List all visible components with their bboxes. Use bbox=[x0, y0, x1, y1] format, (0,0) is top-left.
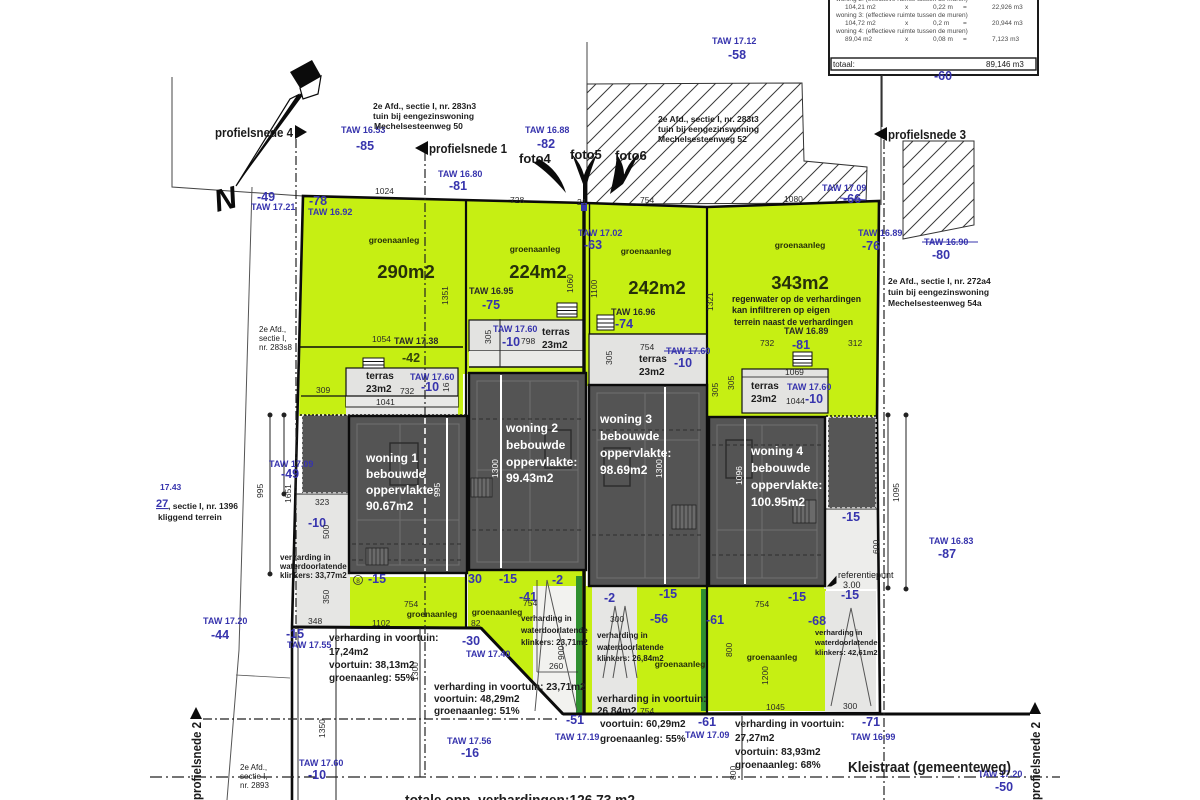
svg-text:-56: -56 bbox=[650, 612, 668, 626]
svg-text:tuin bij eengezinswoning: tuin bij eengezinswoning bbox=[658, 124, 759, 134]
svg-text:klinkers: 42,61m2: klinkers: 42,61m2 bbox=[815, 648, 878, 657]
svg-text:groenaanleg: groenaanleg bbox=[369, 235, 420, 245]
svg-text:Mechelsesteenweg 54a: Mechelsesteenweg 54a bbox=[888, 298, 982, 308]
svg-text:tuin bij eengezinswoning: tuin bij eengezinswoning bbox=[888, 287, 989, 297]
svg-text:-42: -42 bbox=[402, 351, 420, 365]
svg-text:-10: -10 bbox=[308, 768, 326, 782]
svg-text:profielsnede 2: profielsnede 2 bbox=[189, 722, 204, 800]
svg-text:-58: -58 bbox=[728, 48, 746, 62]
svg-text:20,944 m3: 20,944 m3 bbox=[992, 20, 1023, 27]
svg-text:TAW 16.96: TAW 16.96 bbox=[611, 307, 655, 317]
svg-text:732: 732 bbox=[760, 338, 774, 348]
svg-text:sectie I,: sectie I, bbox=[240, 772, 268, 781]
svg-text:800: 800 bbox=[728, 766, 738, 780]
svg-text:1350: 1350 bbox=[317, 719, 327, 738]
svg-text:groenaanleg: 55%: groenaanleg: 55% bbox=[329, 673, 415, 684]
svg-text:1041: 1041 bbox=[376, 397, 395, 407]
svg-text:nr. 283s8: nr. 283s8 bbox=[259, 343, 292, 352]
svg-text:TAW 17.12: TAW 17.12 bbox=[712, 36, 756, 46]
svg-text:woning 3: woning 3 bbox=[599, 412, 652, 426]
svg-text:TAW 17.60: TAW 17.60 bbox=[787, 382, 831, 392]
svg-text:1060: 1060 bbox=[565, 274, 575, 293]
svg-text:224m2: 224m2 bbox=[509, 261, 567, 282]
svg-text:995: 995 bbox=[255, 484, 265, 498]
svg-text:verharding in voortuin:: verharding in voortuin: bbox=[735, 719, 844, 730]
svg-text:-15: -15 bbox=[286, 627, 304, 641]
svg-text:woning 3: (effectieve ruimte: woning 3: (effectieve ruimte tussen de m… bbox=[835, 12, 968, 19]
svg-text:verharding in voortuin:: verharding in voortuin: bbox=[597, 694, 706, 705]
svg-text:100.95m2: 100.95m2 bbox=[751, 495, 805, 509]
svg-text:1300: 1300 bbox=[654, 459, 664, 478]
svg-text:305: 305 bbox=[604, 351, 614, 365]
svg-text:-75: -75 bbox=[482, 298, 500, 312]
svg-text:-63: -63 bbox=[584, 238, 602, 252]
svg-text:woning 4: (effectieve ruimte: woning 4: (effectieve ruimte tussen de m… bbox=[835, 28, 968, 35]
svg-text:TAW 17.56: TAW 17.56 bbox=[447, 736, 491, 746]
svg-text:300: 300 bbox=[610, 614, 624, 624]
svg-text:290m2: 290m2 bbox=[377, 261, 435, 282]
svg-text:-15: -15 bbox=[788, 590, 806, 604]
svg-text:728: 728 bbox=[510, 195, 524, 205]
svg-text:-10: -10 bbox=[421, 380, 439, 394]
svg-text:104,72 m2: 104,72 m2 bbox=[845, 20, 876, 27]
svg-text:TAW 17.60: TAW 17.60 bbox=[493, 324, 537, 334]
svg-text:-68: -68 bbox=[808, 614, 826, 628]
svg-text:23m2: 23m2 bbox=[366, 384, 392, 395]
svg-text:TAW 16.92: TAW 16.92 bbox=[308, 207, 352, 217]
svg-text:242m2: 242m2 bbox=[628, 277, 686, 298]
svg-text:referentiepunt: referentiepunt bbox=[838, 570, 894, 580]
svg-text:23m2: 23m2 bbox=[542, 340, 568, 351]
svg-text:305: 305 bbox=[726, 376, 736, 390]
svg-text:waterdoorlatende: waterdoorlatende bbox=[279, 562, 347, 571]
svg-text:TAW 17.40: TAW 17.40 bbox=[466, 649, 510, 659]
svg-text:Mechelsesteenweg 52: Mechelsesteenweg 52 bbox=[658, 134, 747, 144]
svg-text:klinkers: 26,84m2: klinkers: 26,84m2 bbox=[597, 654, 664, 663]
svg-text:1096: 1096 bbox=[734, 466, 744, 485]
svg-text:=: = bbox=[963, 4, 967, 11]
svg-text:-71: -71 bbox=[862, 715, 880, 729]
svg-text:groenaanleg: groenaanleg bbox=[510, 244, 561, 254]
svg-text:TAW 16.89: TAW 16.89 bbox=[784, 326, 828, 336]
svg-text:TAW 16.88: TAW 16.88 bbox=[525, 125, 569, 135]
svg-text:verharding in: verharding in bbox=[815, 628, 863, 637]
svg-text:995: 995 bbox=[432, 483, 442, 497]
svg-text:27: 27 bbox=[156, 498, 168, 510]
svg-text:bebouwde: bebouwde bbox=[600, 429, 660, 443]
svg-text:kliggend terrein: kliggend terrein bbox=[158, 512, 222, 522]
svg-text:82: 82 bbox=[471, 618, 481, 628]
svg-text:104,21 m2: 104,21 m2 bbox=[845, 4, 876, 11]
svg-text:-30: -30 bbox=[462, 634, 480, 648]
svg-text:754: 754 bbox=[640, 706, 654, 716]
svg-text:3.00: 3.00 bbox=[843, 580, 861, 590]
svg-text:TAW 17.19: TAW 17.19 bbox=[555, 732, 599, 742]
svg-text:sectie I,: sectie I, bbox=[259, 334, 287, 343]
svg-text:1102: 1102 bbox=[372, 618, 391, 628]
svg-text:voortuin: 48,29m2: voortuin: 48,29m2 bbox=[434, 694, 520, 705]
svg-text:bebouwde: bebouwde bbox=[751, 461, 811, 475]
svg-text:500: 500 bbox=[321, 525, 331, 539]
svg-text:profielsnede 2: profielsnede 2 bbox=[1028, 722, 1043, 800]
svg-text:waterdoorlatende: waterdoorlatende bbox=[520, 626, 588, 635]
svg-text:8: 8 bbox=[356, 578, 360, 585]
svg-text:754: 754 bbox=[755, 599, 769, 609]
svg-text:798: 798 bbox=[521, 336, 535, 346]
svg-text:1321: 1321 bbox=[705, 292, 715, 311]
svg-text:26,84m2: 26,84m2 bbox=[597, 706, 637, 717]
svg-text:oppervlakte:: oppervlakte: bbox=[751, 478, 822, 492]
svg-text:-82: -82 bbox=[537, 137, 555, 151]
svg-text:2e Afd., sectie I, nr. 283n3: 2e Afd., sectie I, nr. 283n3 bbox=[373, 101, 476, 111]
svg-text:voortuin: 60,29m2: voortuin: 60,29m2 bbox=[600, 719, 686, 730]
svg-text:totaal:: totaal: bbox=[833, 60, 855, 69]
svg-text:verharding in: verharding in bbox=[280, 553, 331, 562]
svg-text:groenaanleg: 68%: groenaanleg: 68% bbox=[735, 760, 821, 771]
svg-text:1024: 1024 bbox=[375, 186, 394, 196]
svg-text:1054: 1054 bbox=[372, 334, 391, 344]
svg-text:1651: 1651 bbox=[283, 484, 293, 503]
svg-text:17,24m2: 17,24m2 bbox=[329, 647, 369, 658]
svg-text:terras: terras bbox=[751, 381, 779, 392]
svg-text:348: 348 bbox=[308, 616, 322, 626]
svg-text:regenwater op de verhardingen: regenwater op de verhardingen bbox=[732, 294, 861, 305]
svg-text:1044: 1044 bbox=[786, 396, 805, 406]
svg-text:-15: -15 bbox=[841, 588, 859, 602]
svg-text:2e Afd., sectie I, nr. 283t3: 2e Afd., sectie I, nr. 283t3 bbox=[658, 114, 759, 124]
svg-text:-10: -10 bbox=[502, 335, 520, 349]
svg-text:groenaanleg: groenaanleg bbox=[472, 607, 523, 617]
svg-text:0,22 m: 0,22 m bbox=[933, 4, 953, 11]
svg-text:323: 323 bbox=[315, 497, 329, 507]
svg-text:1080: 1080 bbox=[784, 194, 803, 204]
svg-text:waterdoorlatende: waterdoorlatende bbox=[814, 638, 878, 647]
svg-text:=: = bbox=[963, 36, 967, 43]
svg-text:-15: -15 bbox=[499, 572, 517, 586]
svg-text:woning 2: woning 2 bbox=[505, 421, 558, 435]
svg-text:343m2: 343m2 bbox=[771, 272, 829, 293]
svg-text:voortuin: 38,13m2: voortuin: 38,13m2 bbox=[329, 660, 415, 671]
svg-text:27,27m2: 27,27m2 bbox=[735, 733, 775, 744]
svg-text:profielsnede 4: profielsnede 4 bbox=[215, 125, 294, 140]
svg-text:-66: -66 bbox=[843, 192, 861, 206]
svg-text:1300: 1300 bbox=[410, 662, 420, 681]
svg-text:TAW 17.20: TAW 17.20 bbox=[203, 616, 247, 626]
svg-text:-87: -87 bbox=[938, 547, 956, 561]
svg-text:30: 30 bbox=[468, 572, 482, 586]
svg-text:tuin bij eengezinswoning: tuin bij eengezinswoning bbox=[373, 111, 474, 121]
svg-text:waterdoorlatende: waterdoorlatende bbox=[596, 643, 664, 652]
svg-text:TAW 17.55: TAW 17.55 bbox=[287, 640, 331, 650]
svg-text:2e Afd.,: 2e Afd., bbox=[259, 325, 286, 334]
svg-text:-49: -49 bbox=[281, 467, 299, 481]
svg-text:350: 350 bbox=[321, 590, 331, 604]
svg-text:-74: -74 bbox=[615, 317, 633, 331]
svg-text:89,04 m2: 89,04 m2 bbox=[845, 36, 872, 43]
svg-text:terras: terras bbox=[639, 354, 667, 365]
svg-text:0,08 m: 0,08 m bbox=[933, 36, 953, 43]
svg-text:-44: -44 bbox=[211, 628, 229, 642]
svg-text:260: 260 bbox=[549, 661, 563, 671]
svg-text:-78: -78 bbox=[309, 194, 327, 208]
svg-text:woning 1: woning 1 bbox=[365, 451, 418, 465]
svg-text:754: 754 bbox=[640, 342, 654, 352]
svg-text:16: 16 bbox=[441, 382, 451, 392]
svg-text:oppervlakte:: oppervlakte: bbox=[366, 483, 437, 497]
svg-text:groenaanleg: 55%: groenaanleg: 55% bbox=[600, 734, 686, 745]
svg-text:terras: terras bbox=[366, 371, 394, 382]
svg-text:TAW 17.02: TAW 17.02 bbox=[578, 228, 622, 238]
svg-text:-2: -2 bbox=[552, 573, 563, 587]
svg-text:309: 309 bbox=[316, 385, 330, 395]
svg-text:-15: -15 bbox=[842, 510, 860, 524]
svg-text:verharding in: verharding in bbox=[521, 614, 572, 623]
svg-text:754: 754 bbox=[404, 599, 418, 609]
svg-text:TAW 16.89: TAW 16.89 bbox=[858, 228, 902, 238]
svg-text:-61: -61 bbox=[698, 715, 716, 729]
svg-text:1045: 1045 bbox=[766, 702, 785, 712]
svg-text:305: 305 bbox=[710, 383, 720, 397]
svg-text:1069: 1069 bbox=[785, 367, 804, 377]
svg-text:23m2: 23m2 bbox=[751, 394, 777, 405]
svg-text:voortuin: 83,93m2: voortuin: 83,93m2 bbox=[735, 747, 821, 758]
svg-text:TAW 16.83: TAW 16.83 bbox=[929, 536, 973, 546]
svg-text:-50: -50 bbox=[995, 780, 1013, 794]
svg-text:-15: -15 bbox=[659, 587, 677, 601]
svg-text:groenaanleg: groenaanleg bbox=[775, 240, 826, 250]
svg-text:900: 900 bbox=[556, 646, 566, 660]
svg-text:-10: -10 bbox=[674, 356, 692, 370]
svg-text:7,123 m3: 7,123 m3 bbox=[992, 36, 1019, 43]
svg-text:TAW 16.99: TAW 16.99 bbox=[851, 732, 895, 742]
svg-text:bebouwde: bebouwde bbox=[366, 467, 426, 481]
svg-text:=: = bbox=[963, 20, 967, 27]
svg-text:1095: 1095 bbox=[891, 483, 901, 502]
svg-text:groenaanleg: groenaanleg bbox=[621, 246, 672, 256]
svg-text:22,926 m3: 22,926 m3 bbox=[992, 4, 1023, 11]
svg-text:600: 600 bbox=[871, 540, 881, 554]
svg-text:-81: -81 bbox=[792, 338, 810, 352]
svg-text:312: 312 bbox=[848, 338, 862, 348]
svg-text:TAW 17.09: TAW 17.09 bbox=[685, 730, 729, 740]
svg-text:Kleistraat (gemeenteweg): Kleistraat (gemeenteweg) bbox=[848, 759, 1011, 776]
svg-text:TAW 16.80: TAW 16.80 bbox=[438, 169, 482, 179]
svg-text:oppervlakte:: oppervlakte: bbox=[506, 455, 577, 469]
svg-text:totale opp. verhardingen:126: totale opp. verhardingen:126,73 m2 bbox=[405, 792, 635, 800]
svg-text:-51: -51 bbox=[566, 713, 584, 727]
svg-text:woning 2: (effectieve ruimte: woning 2: (effectieve ruimte tussen de m… bbox=[835, 0, 968, 3]
svg-text:Mechelsesteenweg 50: Mechelsesteenweg 50 bbox=[374, 121, 463, 131]
svg-text:1351: 1351 bbox=[440, 286, 450, 305]
svg-text:klinkers: 33,77m2: klinkers: 33,77m2 bbox=[280, 571, 347, 580]
svg-text:-16: -16 bbox=[461, 746, 479, 760]
svg-text:profielsnede 3: profielsnede 3 bbox=[888, 127, 966, 142]
svg-text:0,2 m: 0,2 m bbox=[933, 20, 949, 27]
svg-text:99.43m2: 99.43m2 bbox=[506, 471, 554, 485]
svg-text:TAW 16.95: TAW 16.95 bbox=[469, 286, 513, 296]
svg-text:-2: -2 bbox=[604, 591, 615, 605]
svg-text:23m2: 23m2 bbox=[639, 367, 665, 378]
svg-text:terras: terras bbox=[542, 327, 570, 338]
svg-text:21: 21 bbox=[577, 197, 587, 207]
svg-text:-81: -81 bbox=[449, 179, 467, 193]
svg-text:732: 732 bbox=[400, 386, 414, 396]
svg-text:2e Afd., sectie I, nr. 272a4: 2e Afd., sectie I, nr. 272a4 bbox=[888, 276, 991, 286]
svg-text:groenaanleg: groenaanleg bbox=[407, 609, 458, 619]
svg-text:754: 754 bbox=[523, 598, 537, 608]
svg-text:89,146 m3: 89,146 m3 bbox=[986, 60, 1024, 69]
svg-text:800: 800 bbox=[724, 643, 734, 657]
svg-text:-85: -85 bbox=[356, 139, 374, 153]
svg-text:300: 300 bbox=[843, 701, 857, 711]
svg-text:oppervlakte:: oppervlakte: bbox=[600, 446, 671, 460]
svg-text:-15: -15 bbox=[368, 572, 386, 586]
svg-text:-80: -80 bbox=[932, 248, 950, 262]
svg-text:90.67m2: 90.67m2 bbox=[366, 499, 414, 513]
svg-text:305: 305 bbox=[483, 330, 493, 344]
svg-text:groenaanleg: groenaanleg bbox=[747, 652, 798, 662]
svg-text:1200: 1200 bbox=[760, 666, 770, 685]
svg-text:TAW 17.60: TAW 17.60 bbox=[299, 758, 343, 768]
svg-text:bebouwde: bebouwde bbox=[506, 438, 566, 452]
svg-text:17.43: 17.43 bbox=[160, 482, 182, 492]
svg-text:754: 754 bbox=[640, 195, 654, 205]
svg-text:verharding in voortuin:: verharding in voortuin: bbox=[329, 633, 438, 644]
svg-text:1300: 1300 bbox=[490, 459, 500, 478]
svg-text:, sectie I, nr. 1396: , sectie I, nr. 1396 bbox=[168, 501, 238, 511]
svg-text:kan infiltreren op eigen: kan infiltreren op eigen bbox=[732, 305, 830, 316]
svg-text:98.69m2: 98.69m2 bbox=[600, 463, 648, 477]
svg-text:verharding in: verharding in bbox=[597, 631, 648, 640]
svg-text:nr. 2893: nr. 2893 bbox=[240, 781, 269, 790]
svg-text:groenaanleg: 51%: groenaanleg: 51% bbox=[434, 706, 520, 717]
svg-text:profielsnede 1: profielsnede 1 bbox=[429, 141, 507, 156]
svg-text:TAW 17.38: TAW 17.38 bbox=[394, 336, 438, 346]
svg-text:1100: 1100 bbox=[589, 279, 599, 298]
svg-text:-10: -10 bbox=[805, 392, 823, 406]
svg-text:-60: -60 bbox=[934, 69, 952, 83]
svg-text:woning 4: woning 4 bbox=[750, 444, 803, 458]
svg-text:klinkers: 23,71m2: klinkers: 23,71m2 bbox=[521, 638, 588, 647]
svg-text:-49: -49 bbox=[257, 190, 275, 204]
svg-text:-76: -76 bbox=[862, 239, 880, 253]
svg-text:verharding in voortuin: 23,71: verharding in voortuin: 23,71m2 bbox=[434, 682, 586, 693]
svg-text:-61: -61 bbox=[706, 613, 724, 627]
svg-text:2e Afd.,: 2e Afd., bbox=[240, 763, 267, 772]
